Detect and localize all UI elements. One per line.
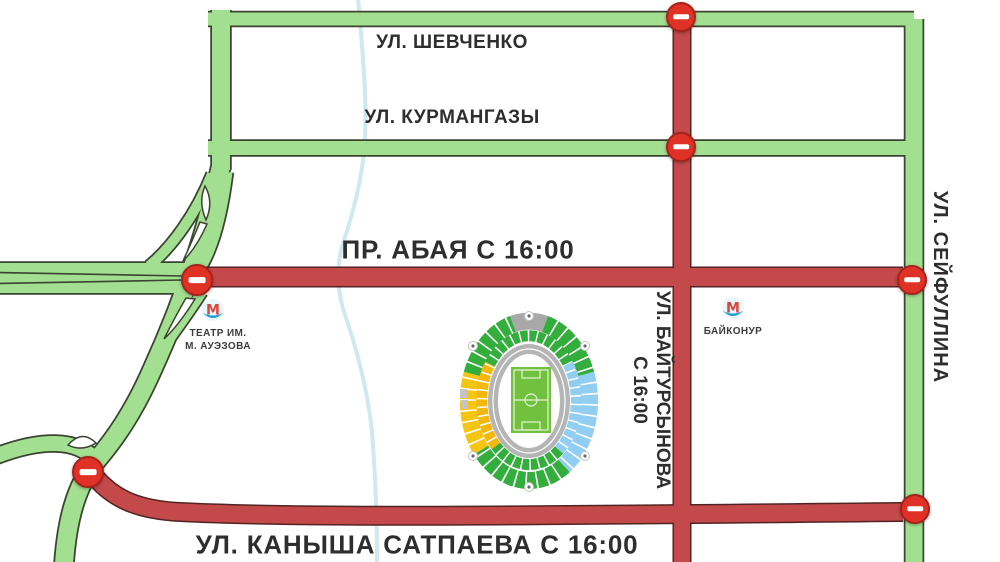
svg-text:М: М: [206, 303, 220, 319]
label-metro-theater: ТЕАТР ИМ. М. АУЭЗОВА: [185, 328, 251, 353]
label-metro-theater-line2: М. АУЭЗОВА: [185, 341, 251, 354]
label-baytursynova-line2: С 16:00: [628, 270, 651, 510]
label-metro-baikonur: БАЙКОНУР: [704, 326, 762, 339]
no-entry-icon: [897, 265, 927, 295]
no-entry-icon: [72, 456, 104, 488]
road-closure-map: УЛ. ШЕВЧЕНКО УЛ. КУРМАНГАЗЫ ПР. АБАЯ С 1…: [0, 0, 1000, 562]
road-satpaeva: [96, 478, 903, 516]
svg-text:М: М: [726, 301, 740, 317]
label-shevchenko: УЛ. ШЕВЧЕНКО: [376, 32, 528, 54]
label-abaya: ПР. АБАЯ С 16:00: [341, 235, 574, 266]
metro-logo-icon-baikonur: М: [720, 296, 746, 322]
map-canvas: [0, 0, 1000, 562]
stadium: [460, 312, 590, 492]
label-baytursynova-line1: УЛ. БАЙТУРСЫНОВА: [651, 270, 674, 510]
stadium-scoreboard: [513, 321, 545, 324]
metro-logo-icon-theater: М: [200, 298, 226, 324]
label-seyfullina: УЛ. СЕЙФУЛЛИНА: [928, 177, 952, 397]
label-metro-theater-line1: ТЕАТР ИМ.: [185, 328, 251, 341]
label-kurmangazy: УЛ. КУРМАНГАЗЫ: [364, 107, 539, 129]
no-entry-icon: [181, 264, 213, 296]
no-entry-icon: [666, 132, 696, 162]
no-entry-icon: [900, 494, 930, 524]
label-baytursynova: УЛ. БАЙТУРСЫНОВА С 16:00: [628, 270, 674, 510]
no-entry-icon: [666, 2, 696, 32]
label-satpaeva: УЛ. КАНЫША САТПАЕВА С 16:00: [196, 530, 639, 561]
